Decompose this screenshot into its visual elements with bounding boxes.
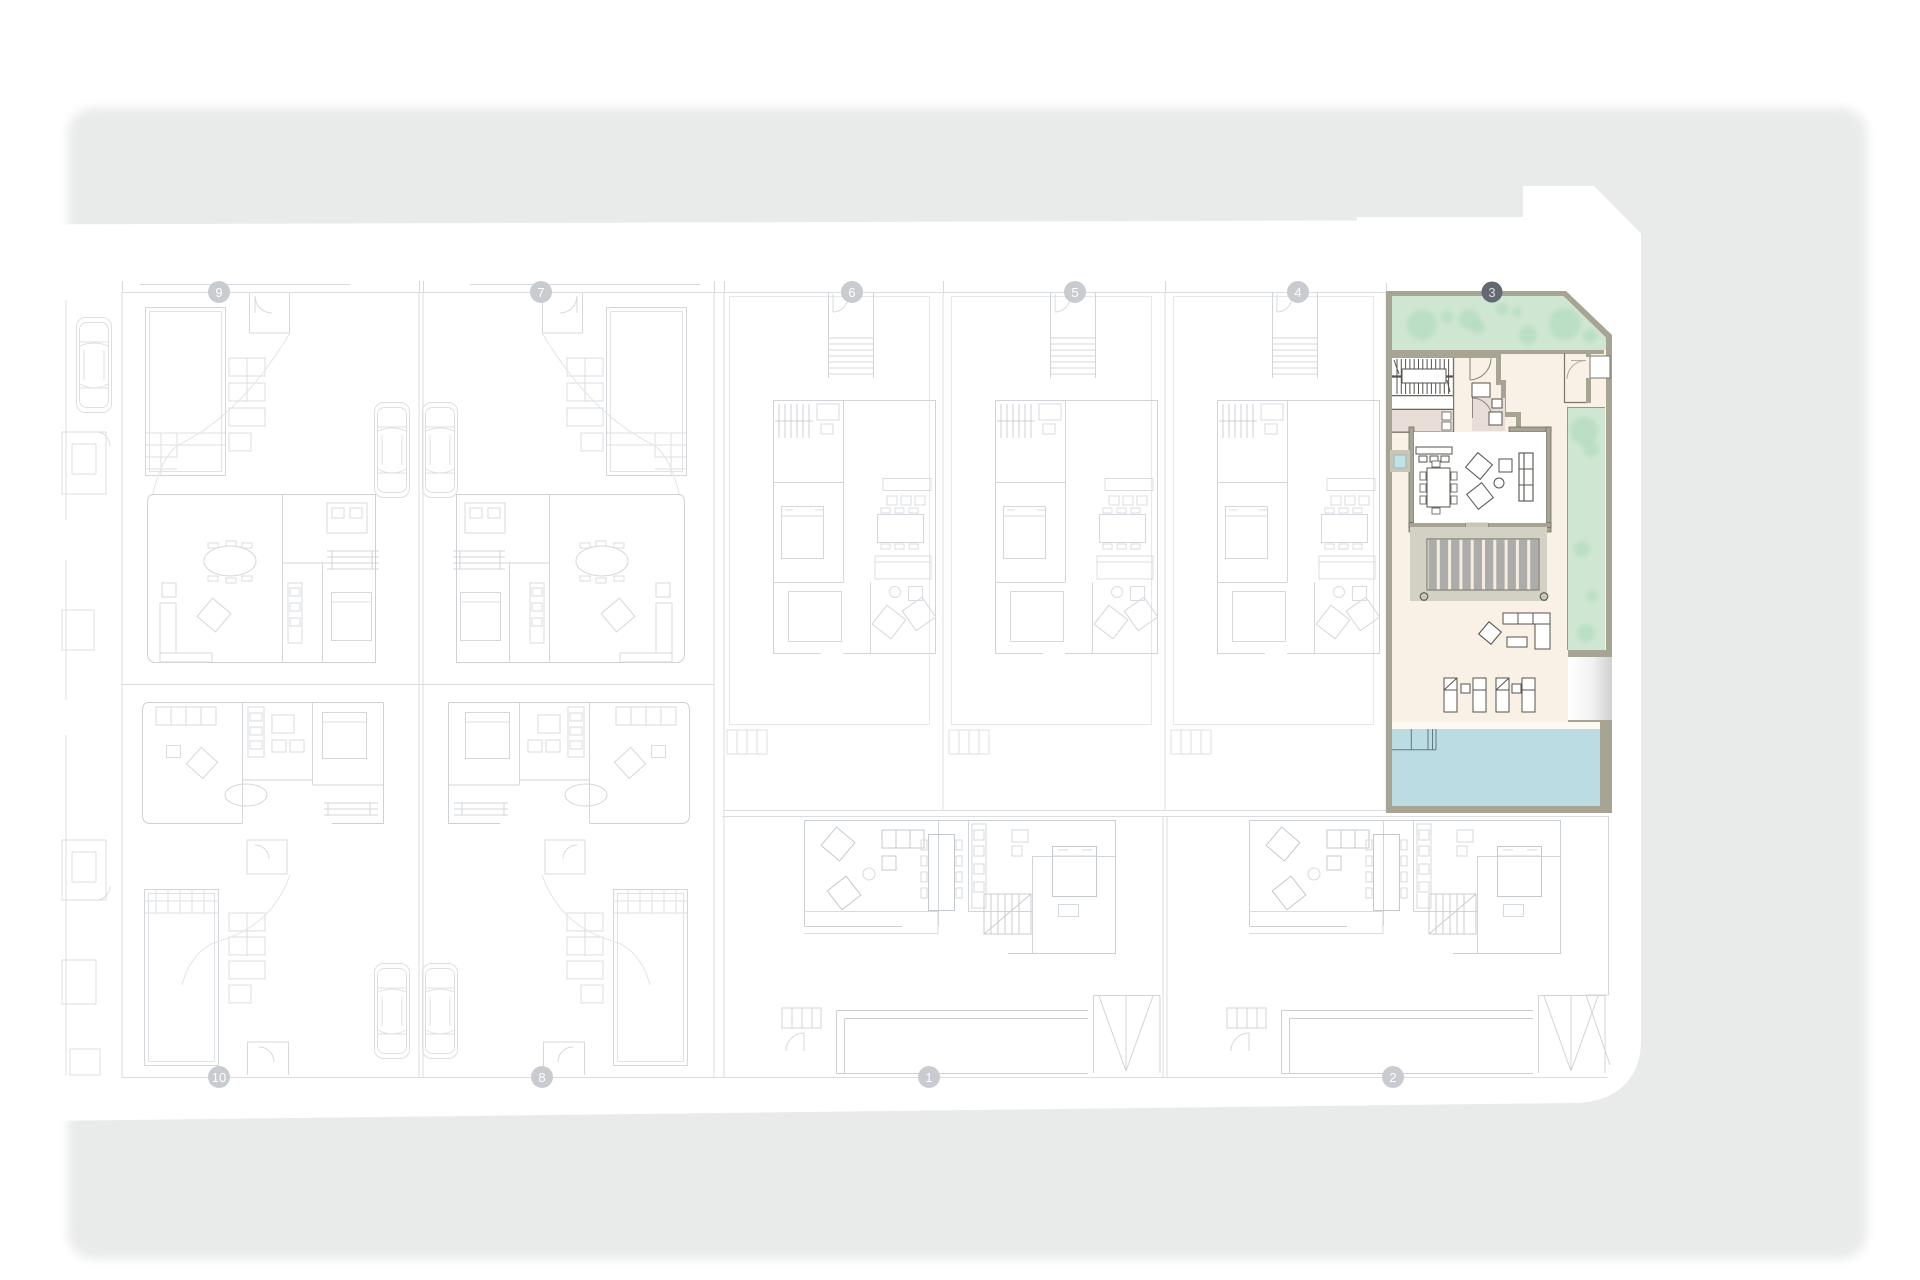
svg-text:2: 2 xyxy=(1389,1070,1396,1085)
svg-text:5: 5 xyxy=(1071,285,1078,300)
svg-text:10: 10 xyxy=(212,1070,226,1085)
svg-text:6: 6 xyxy=(848,285,855,300)
svg-text:1: 1 xyxy=(925,1070,932,1085)
svg-text:7: 7 xyxy=(537,285,544,300)
svg-text:9: 9 xyxy=(215,285,222,300)
svg-text:4: 4 xyxy=(1294,285,1301,300)
svg-text:8: 8 xyxy=(538,1070,545,1085)
svg-text:3: 3 xyxy=(1488,285,1495,300)
